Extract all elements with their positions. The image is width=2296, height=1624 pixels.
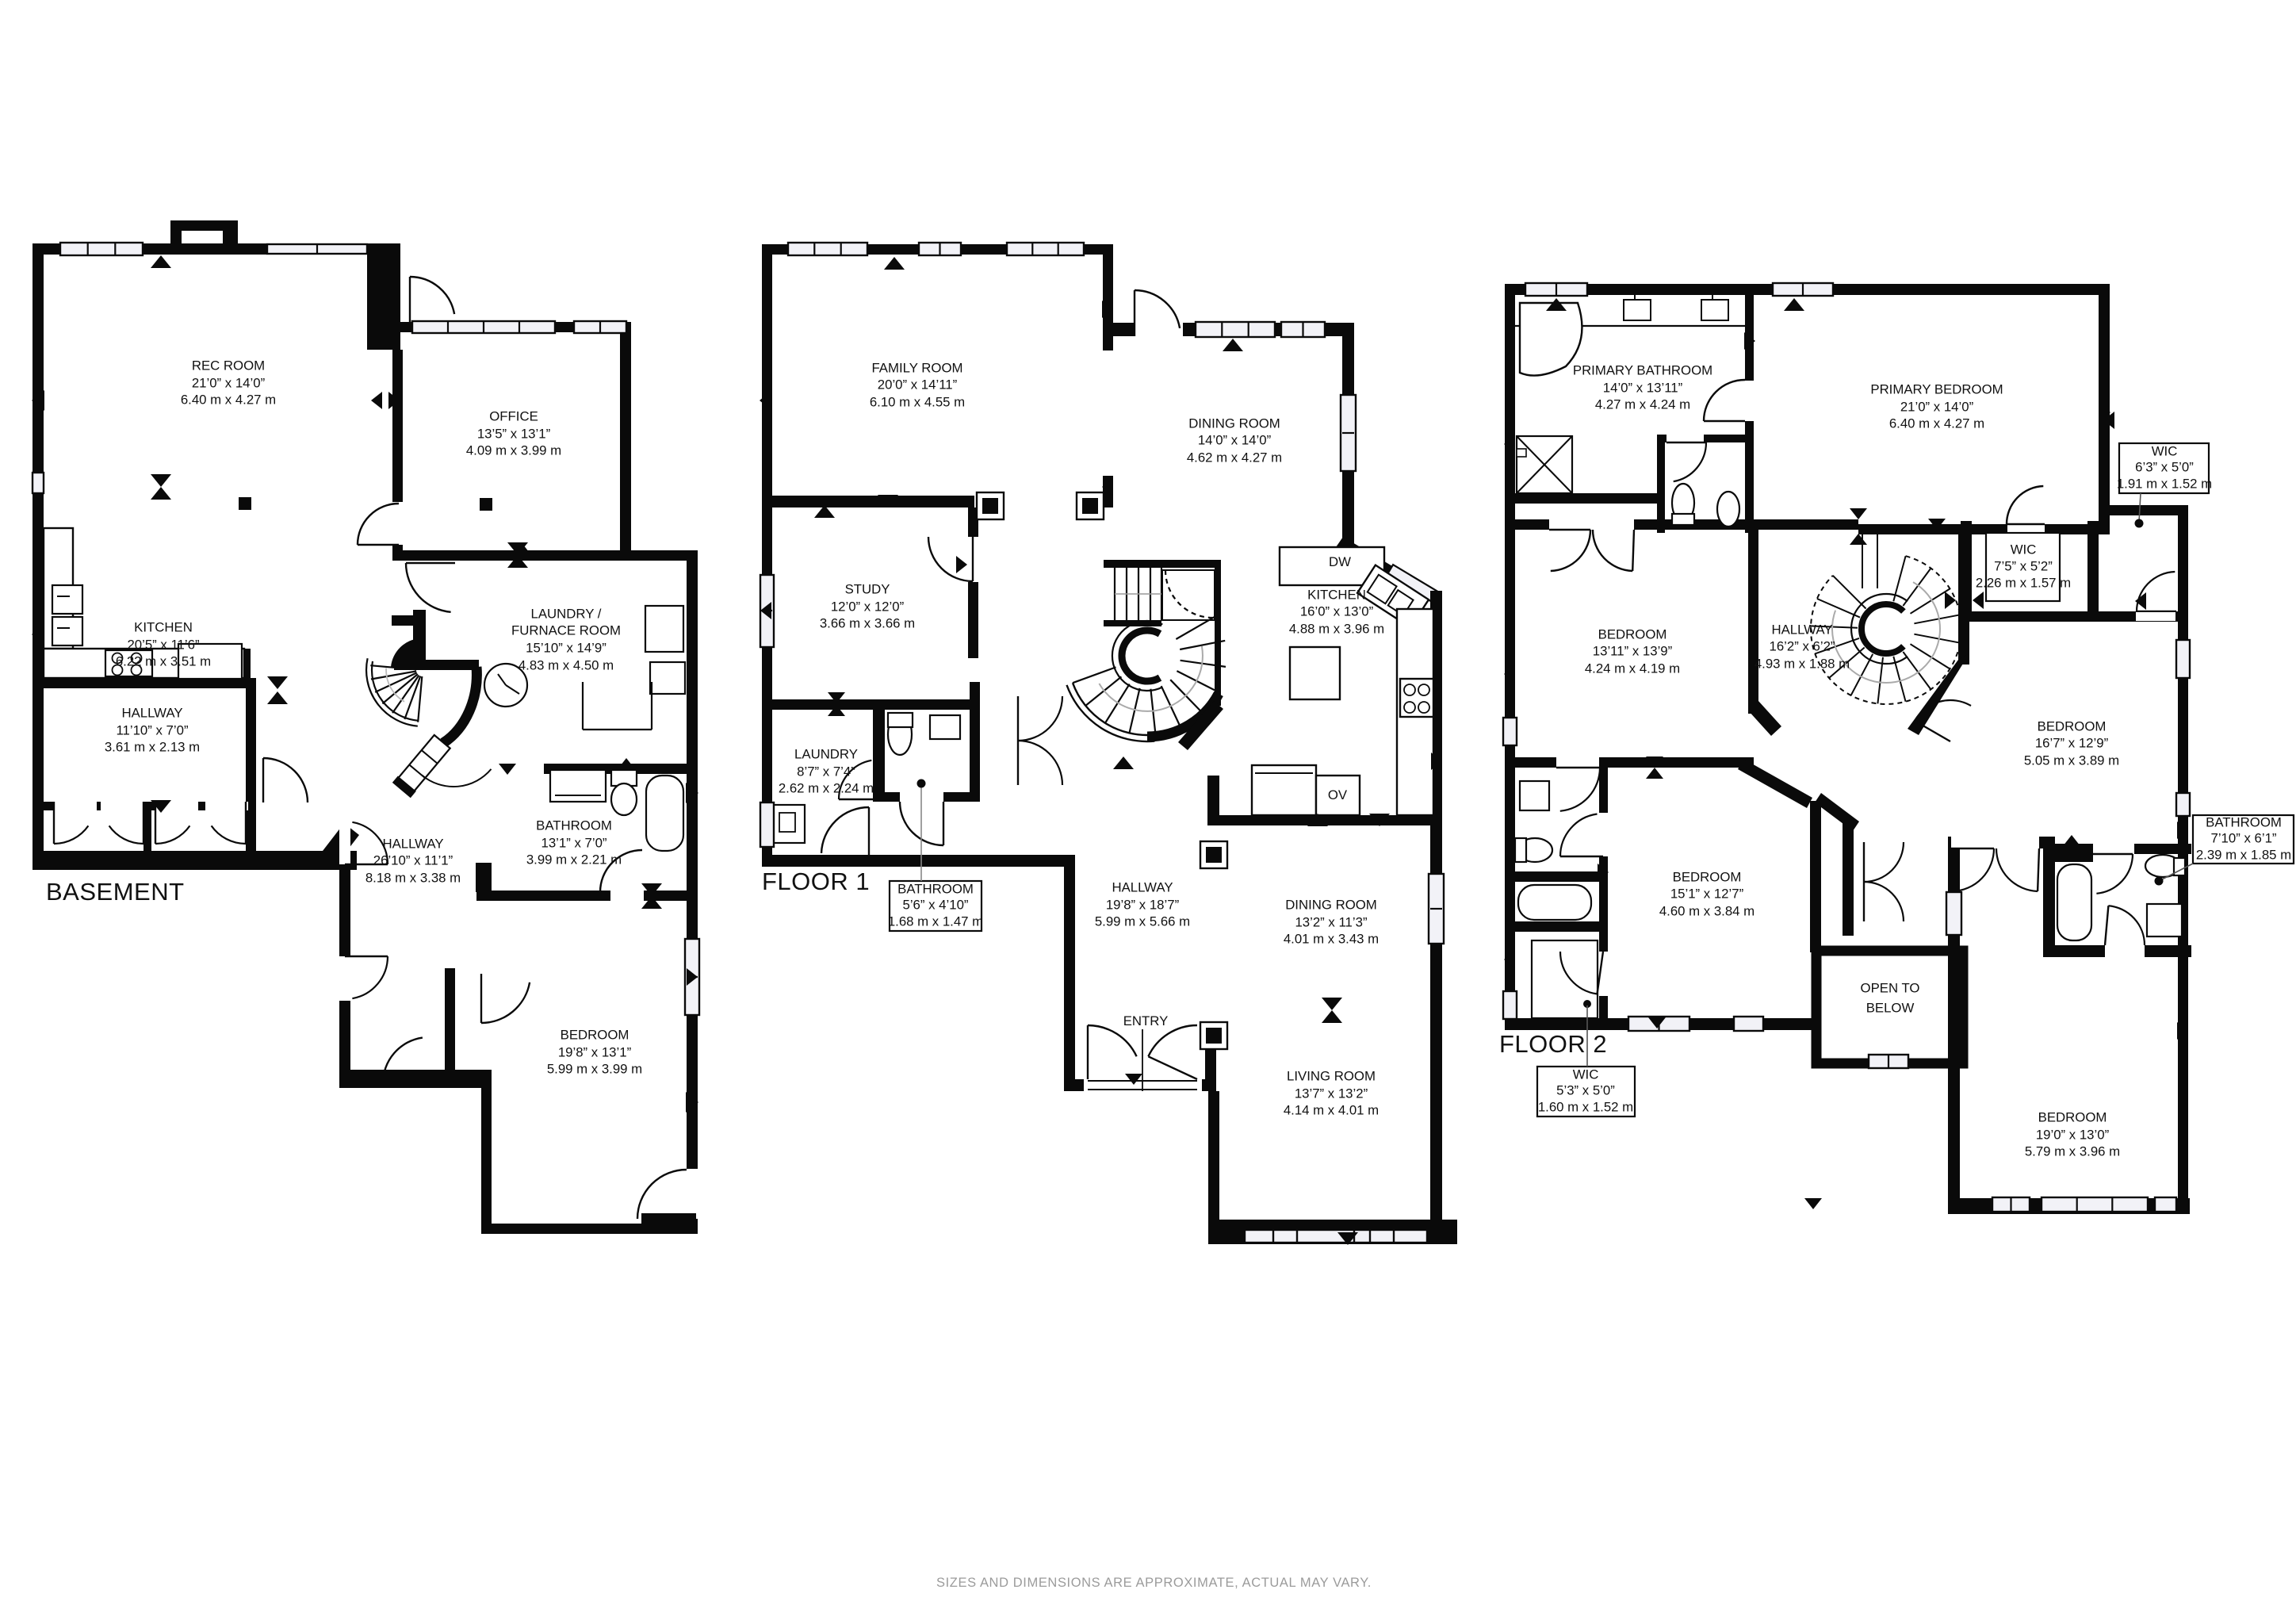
svg-text:4.24 m x 4.19 m: 4.24 m x 4.19 m bbox=[1585, 661, 1680, 676]
svg-text:STUDY: STUDY bbox=[845, 581, 890, 596]
svg-text:1.60 m x 1.52 m: 1.60 m x 1.52 m bbox=[1538, 1099, 1633, 1114]
svg-text:3.99 m x 2.21 m: 3.99 m x 2.21 m bbox=[526, 852, 622, 867]
svg-text:7’10” x 6’1”: 7’10” x 6’1” bbox=[2210, 830, 2276, 845]
svg-text:4.14 m x 4.01 m: 4.14 m x 4.01 m bbox=[1284, 1102, 1379, 1117]
svg-text:LIVING ROOM: LIVING ROOM bbox=[1287, 1068, 1376, 1083]
svg-text:6.10 m x 4.55 m: 6.10 m x 4.55 m bbox=[870, 394, 965, 409]
svg-text:WIC: WIC bbox=[2152, 443, 2178, 458]
svg-text:BEDROOM: BEDROOM bbox=[2038, 1109, 2107, 1124]
svg-text:HALLWAY: HALLWAY bbox=[1771, 622, 1832, 637]
svg-text:5’6” x 4’10”: 5’6” x 4’10” bbox=[902, 897, 968, 912]
svg-text:BEDROOM: BEDROOM bbox=[1598, 626, 1667, 642]
svg-text:26’10” x 11’1”: 26’10” x 11’1” bbox=[373, 852, 453, 868]
svg-text:OV: OV bbox=[1328, 787, 1348, 802]
svg-text:14’0” x 13’11”: 14’0” x 13’11” bbox=[1603, 380, 1682, 395]
svg-text:LAUNDRY /: LAUNDRY / bbox=[531, 606, 602, 621]
svg-text:5.99 m x 5.66 m: 5.99 m x 5.66 m bbox=[1095, 913, 1190, 929]
svg-text:1.68 m x 1.47 m: 1.68 m x 1.47 m bbox=[888, 913, 983, 929]
svg-text:ENTRY: ENTRY bbox=[1123, 1013, 1169, 1028]
svg-text:15’1” x 12’7”: 15’1” x 12’7” bbox=[1670, 886, 1743, 901]
svg-text:PRIMARY BATHROOM: PRIMARY BATHROOM bbox=[1573, 362, 1712, 377]
svg-text:BEDROOM: BEDROOM bbox=[2038, 718, 2107, 733]
svg-text:13’7” x 13’2”: 13’7” x 13’2” bbox=[1295, 1086, 1368, 1101]
svg-text:15’10” x 14’9”: 15’10” x 14’9” bbox=[526, 640, 607, 655]
svg-text:BEDROOM: BEDROOM bbox=[1673, 869, 1742, 884]
svg-text:2.62 m x 2.24 m: 2.62 m x 2.24 m bbox=[779, 780, 874, 795]
svg-text:21’0” x 14’0”: 21’0” x 14’0” bbox=[1900, 399, 1973, 414]
svg-text:4.83 m x 4.50 m: 4.83 m x 4.50 m bbox=[519, 657, 614, 672]
svg-text:3.66 m x 3.66 m: 3.66 m x 3.66 m bbox=[820, 615, 915, 630]
svg-text:DINING ROOM: DINING ROOM bbox=[1285, 897, 1377, 912]
svg-text:WIC: WIC bbox=[2011, 542, 2037, 557]
svg-text:8’7” x 7’4”: 8’7” x 7’4” bbox=[797, 764, 855, 779]
svg-text:6’3” x 5’0”: 6’3” x 5’0” bbox=[2135, 459, 2194, 474]
svg-text:8.18 m x 3.38 m: 8.18 m x 3.38 m bbox=[365, 870, 461, 885]
svg-text:4.93 m x 1.88 m: 4.93 m x 1.88 m bbox=[1755, 656, 1850, 671]
svg-text:WIC: WIC bbox=[1573, 1067, 1599, 1082]
svg-text:4.09 m x 3.99 m: 4.09 m x 3.99 m bbox=[466, 442, 561, 458]
svg-text:REC ROOM: REC ROOM bbox=[192, 358, 265, 373]
svg-text:DINING ROOM: DINING ROOM bbox=[1188, 416, 1280, 431]
svg-text:BATHROOM: BATHROOM bbox=[897, 881, 974, 896]
svg-text:11’10” x 7’0”: 11’10” x 7’0” bbox=[116, 722, 188, 737]
svg-text:14’0” x 14’0”: 14’0” x 14’0” bbox=[1198, 432, 1271, 447]
svg-text:2.26 m x 1.57 m: 2.26 m x 1.57 m bbox=[1976, 575, 2071, 590]
svg-text:HALLWAY: HALLWAY bbox=[382, 836, 443, 851]
svg-text:13’2” x 11’3”: 13’2” x 11’3” bbox=[1295, 914, 1367, 929]
svg-text:4.01 m x 3.43 m: 4.01 m x 3.43 m bbox=[1284, 931, 1379, 946]
svg-text:5.05 m x 3.89 m: 5.05 m x 3.89 m bbox=[2024, 753, 2119, 768]
svg-text:2.39 m x 1.85 m: 2.39 m x 1.85 m bbox=[2196, 847, 2291, 862]
svg-text:13’1” x 7’0”: 13’1” x 7’0” bbox=[541, 835, 607, 850]
svg-text:BATHROOM: BATHROOM bbox=[536, 818, 612, 833]
svg-text:4.27 m x 4.24 m: 4.27 m x 4.24 m bbox=[1595, 396, 1690, 412]
svg-text:13’5” x 13’1”: 13’5” x 13’1” bbox=[477, 426, 550, 441]
svg-text:19’0” x 13’0”: 19’0” x 13’0” bbox=[2036, 1127, 2109, 1142]
svg-text:4.60 m x 3.84 m: 4.60 m x 3.84 m bbox=[1659, 903, 1755, 918]
svg-text:HALLWAY: HALLWAY bbox=[1112, 879, 1173, 894]
svg-text:KITCHEN: KITCHEN bbox=[1307, 587, 1366, 602]
svg-text:4.88 m x 3.96 m: 4.88 m x 3.96 m bbox=[1289, 621, 1384, 636]
svg-text:21’0” x 14’0”: 21’0” x 14’0” bbox=[192, 375, 265, 390]
svg-text:16’0” x 13’0”: 16’0” x 13’0” bbox=[1300, 603, 1373, 619]
svg-text:7’5” x 5’2”: 7’5” x 5’2” bbox=[1994, 558, 2053, 573]
svg-text:LAUNDRY: LAUNDRY bbox=[794, 746, 858, 761]
svg-text:16’7” x 12’9”: 16’7” x 12’9” bbox=[2035, 735, 2108, 750]
svg-text:5.99 m x 3.99 m: 5.99 m x 3.99 m bbox=[547, 1061, 642, 1076]
svg-text:FLOOR 1: FLOOR 1 bbox=[762, 868, 870, 895]
svg-text:1.91 m x 1.52 m: 1.91 m x 1.52 m bbox=[2117, 476, 2212, 491]
svg-text:6.40 m x 4.27 m: 6.40 m x 4.27 m bbox=[181, 392, 276, 407]
svg-text:12’0” x 12’0”: 12’0” x 12’0” bbox=[831, 599, 904, 614]
svg-text:BATHROOM: BATHROOM bbox=[2206, 814, 2282, 829]
svg-text:OFFICE: OFFICE bbox=[489, 408, 538, 423]
svg-text:HALLWAY: HALLWAY bbox=[121, 705, 182, 720]
svg-text:6.22 m x 3.51 m: 6.22 m x 3.51 m bbox=[116, 653, 211, 668]
svg-text:5’3” x 5’0”: 5’3” x 5’0” bbox=[1556, 1082, 1615, 1097]
svg-text:3.61 m x 2.13 m: 3.61 m x 2.13 m bbox=[105, 739, 200, 754]
svg-text:20’5” x 11’6”: 20’5” x 11’6” bbox=[127, 637, 199, 652]
svg-text:4.62 m x 4.27 m: 4.62 m x 4.27 m bbox=[1187, 450, 1282, 465]
svg-text:16’2” x 6’2”: 16’2” x 6’2” bbox=[1769, 638, 1835, 653]
svg-text:FLOOR 2: FLOOR 2 bbox=[1499, 1030, 1607, 1058]
svg-text:FAMILY ROOM: FAMILY ROOM bbox=[871, 360, 962, 375]
svg-text:PRIMARY BEDROOM: PRIMARY BEDROOM bbox=[1870, 381, 2003, 396]
svg-text:OPEN TO: OPEN TO bbox=[1861, 980, 1920, 995]
svg-text:19’8” x 18’7”: 19’8” x 18’7” bbox=[1106, 897, 1179, 912]
svg-text:SIZES AND DIMENSIONS ARE APPRO: SIZES AND DIMENSIONS ARE APPROXIMATE, AC… bbox=[936, 1576, 1372, 1590]
svg-text:BEDROOM: BEDROOM bbox=[561, 1027, 629, 1042]
svg-text:KITCHEN: KITCHEN bbox=[134, 619, 193, 634]
svg-text:19’8” x 13’1”: 19’8” x 13’1” bbox=[558, 1044, 631, 1059]
svg-text:DW: DW bbox=[1329, 554, 1351, 569]
svg-text:BASEMENT: BASEMENT bbox=[46, 878, 185, 906]
svg-text:20’0” x 14’11”: 20’0” x 14’11” bbox=[878, 377, 957, 392]
svg-text:6.40 m x 4.27 m: 6.40 m x 4.27 m bbox=[1889, 416, 1984, 431]
svg-text:5.79 m x 3.96 m: 5.79 m x 3.96 m bbox=[2025, 1143, 2120, 1159]
svg-text:13’11” x 13’9”: 13’11” x 13’9” bbox=[1593, 643, 1672, 658]
svg-text:FURNACE ROOM: FURNACE ROOM bbox=[511, 622, 621, 638]
svg-text:BELOW: BELOW bbox=[1866, 1000, 1915, 1015]
